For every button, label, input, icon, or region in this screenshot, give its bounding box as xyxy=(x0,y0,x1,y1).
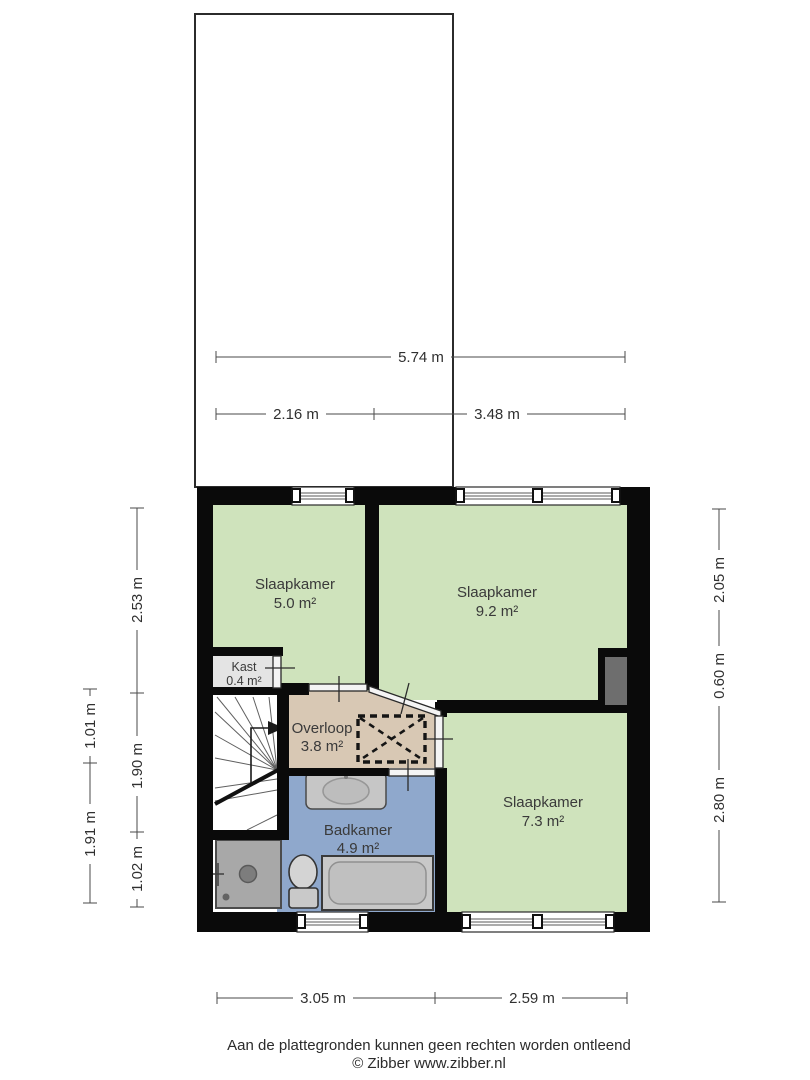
dim-left-outer: 1.01 m 1.91 m xyxy=(81,689,99,903)
bathtub-inner xyxy=(329,862,426,904)
wall-overloop-bottom xyxy=(277,768,389,776)
window-top-left xyxy=(292,487,354,505)
overloop-area: 3.8 m² xyxy=(301,738,344,755)
window-bottom-left xyxy=(297,912,368,932)
bathtub xyxy=(322,856,433,910)
svg-text:5.74 m: 5.74 m xyxy=(398,349,444,366)
svg-text:1.90 m: 1.90 m xyxy=(129,743,146,789)
shower-drain xyxy=(240,866,257,883)
footer-credit: © Zibber www.zibber.nl xyxy=(352,1055,506,1072)
svg-text:3.48 m: 3.48 m xyxy=(474,406,520,423)
svg-text:2.59 m: 2.59 m xyxy=(509,990,555,1007)
badkamer-door-opening xyxy=(389,769,435,776)
wall-right xyxy=(627,487,650,932)
wall-above-kast xyxy=(213,647,283,656)
slaapkamer-2-area: 9.2 m² xyxy=(476,603,519,620)
svg-text:1.91 m: 1.91 m xyxy=(82,811,99,857)
footer: Aan de plattegronden kunnen geen rechten… xyxy=(227,1037,631,1072)
svg-text:2.16 m: 2.16 m xyxy=(273,406,319,423)
kast-area: 0.4 m² xyxy=(226,674,261,688)
svg-text:2.05 m: 2.05 m xyxy=(711,557,728,603)
floor-plan-page: Slaapkamer 5.0 m² Slaapkamer 9.2 m² Slaa… xyxy=(0,0,810,1080)
svg-text:2.53 m: 2.53 m xyxy=(129,577,146,623)
svg-text:0.60 m: 0.60 m xyxy=(711,653,728,699)
slaapkamer-1-name: Slaapkamer xyxy=(255,576,335,593)
svg-text:1.01 m: 1.01 m xyxy=(82,703,99,749)
badkamer-name: Badkamer xyxy=(324,822,392,839)
sink-basin xyxy=(323,778,369,804)
wall-bedroom-divider xyxy=(365,505,379,690)
overloop-name: Overloop xyxy=(292,720,353,737)
badkamer-area: 4.9 m² xyxy=(337,840,380,857)
kast-door xyxy=(273,656,281,688)
slaapkamer-3-name: Slaapkamer xyxy=(503,794,583,811)
window-top-right xyxy=(456,487,620,505)
slaapkamer-2-name: Slaapkamer xyxy=(457,584,537,601)
toilet-tank xyxy=(289,888,318,908)
wall-badkamer-right xyxy=(435,768,447,912)
toilet xyxy=(289,855,318,908)
footer-disclaimer: Aan de plattegronden kunnen geen rechten… xyxy=(227,1037,631,1054)
sink xyxy=(306,772,386,809)
dim-left-inner: 2.53 m 1.90 m 1.02 m xyxy=(128,508,146,907)
wall-stairs-right xyxy=(277,687,289,840)
shaft xyxy=(605,657,627,705)
wall-stairs-bottom xyxy=(213,830,289,840)
svg-text:3.05 m: 3.05 m xyxy=(300,990,346,1007)
dim-right: 2.05 m 0.60 m 2.80 m xyxy=(710,509,728,902)
svg-text:2.80 m: 2.80 m xyxy=(711,777,728,823)
slaapkamer-3-area: 7.3 m² xyxy=(522,813,565,830)
wall-left xyxy=(197,487,213,932)
kast-name: Kast xyxy=(231,660,257,674)
slaapkamer-1-area: 5.0 m² xyxy=(274,595,317,612)
shower-drain-small xyxy=(223,894,230,901)
overloop-top-opening xyxy=(309,684,367,691)
shower xyxy=(212,840,281,908)
dim-bottom: 3.05 m 2.59 m xyxy=(217,988,627,1008)
window-bottom-right xyxy=(462,912,614,932)
overloop-right-wall xyxy=(435,716,443,768)
svg-text:1.02 m: 1.02 m xyxy=(129,846,146,892)
floor-plan-drawing: Slaapkamer 5.0 m² Slaapkamer 9.2 m² Slaa… xyxy=(0,0,810,1080)
